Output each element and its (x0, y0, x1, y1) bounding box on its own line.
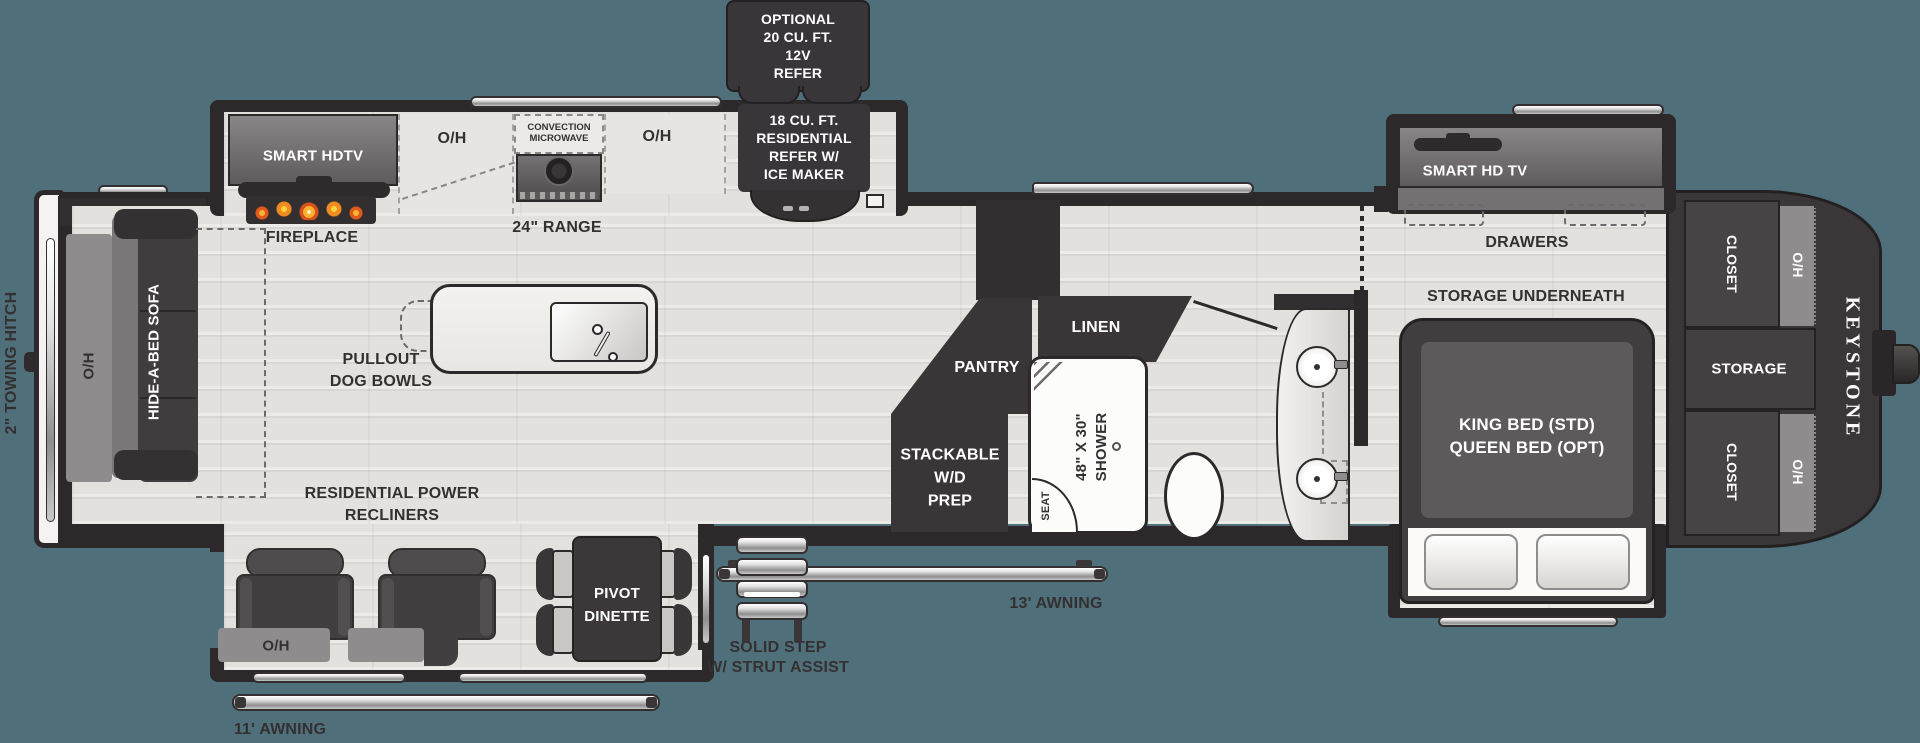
solid-step-label: SOLID STEP W/ STRUT ASSIST (707, 638, 849, 678)
range-controls-icon (520, 192, 598, 199)
dinette-line1: PIVOT (584, 582, 650, 605)
residential-refer-text: 18 CU. FT. RESIDENTIAL REFER W/ ICE MAKE… (738, 111, 870, 183)
fireplace-label: FIREPLACE (266, 229, 358, 247)
bedroom-tv-label: SMART HD TV (1423, 163, 1528, 180)
floorplan-root: 2" TOWING HITCH KEYSTONE CLOSET O/H STOR… (0, 0, 1920, 743)
wd-line2: W/D (900, 467, 999, 490)
vanity-sink-1-drain-icon (1314, 364, 1320, 370)
entry-step-1 (736, 536, 808, 554)
smart-hdtv-label: SMART HDTV (263, 148, 363, 165)
shower-seat-label: SEAT (1040, 491, 1052, 520)
awning-11-cap-right (646, 697, 657, 708)
recliner-footrest (424, 626, 458, 666)
pillow-1 (1424, 534, 1518, 590)
tv-stand-mount-icon (296, 176, 332, 186)
vanity-dashed-divider (1322, 392, 1324, 454)
dog-bowls-line2: DOG BOWLS (330, 371, 432, 393)
optional-refer-line2: 20 CU. FT. (728, 28, 868, 46)
awning-11-cap-left (235, 697, 246, 708)
recliners-line1: RESIDENTIAL POWER (305, 483, 480, 505)
shower-drain-icon (1112, 442, 1121, 451)
bedroom-tv-mount-icon (1446, 133, 1470, 140)
recliners-label: RESIDENTIAL POWER RECLINERS (305, 483, 480, 527)
storage-underneath-label: STORAGE UNDERNEATH (1427, 288, 1625, 306)
sofa-arm-bottom (114, 450, 198, 480)
overhead-front-bottom-label: O/H (1790, 459, 1806, 485)
bedroom-divider-wall (1354, 290, 1368, 446)
range-label: 24" RANGE (512, 219, 601, 237)
closet-front-bottom-label: CLOSET (1724, 443, 1740, 501)
optional-refer-line3: 12V (728, 46, 868, 64)
rear-bumper-bar (46, 238, 55, 522)
pillow-2 (1536, 534, 1630, 590)
dog-bowls-label: PULLOUT DOG BOWLS (330, 349, 432, 393)
vanity-faucet-1-icon (1334, 360, 1348, 369)
recliner-overhead-2 (348, 628, 424, 662)
bottom-wall-rear (60, 524, 222, 548)
awning-11-bar (232, 694, 660, 711)
grab-handle-bar (702, 554, 710, 644)
drawer-outline-1 (1404, 204, 1484, 226)
bed-slide-topper-bar (1438, 616, 1618, 627)
entry-step-4 (736, 602, 808, 620)
storage-front-label: STORAGE (1711, 361, 1786, 378)
shower-label: 48" X 30" SHOWER (1072, 413, 1112, 482)
kingpin-icon (1892, 344, 1920, 384)
toilet (1164, 452, 1224, 540)
awning-11-label: 11' AWNING (234, 721, 326, 739)
convection-microwave-label: CONVECTION MICROWAVE (527, 122, 590, 144)
residential-refer-line1: 18 CU. FT. (738, 111, 870, 129)
bed-label: KING BED (STD) QUEEN BED (OPT) (1449, 413, 1604, 459)
optional-refer-door-icon (738, 86, 800, 104)
drawer-outline-2 (1564, 204, 1646, 226)
refer-callout-residential: 18 CU. FT. RESIDENTIAL REFER W/ ICE MAKE… (738, 104, 870, 192)
dinette-chair-back-4 (674, 604, 692, 656)
optional-refer-line4: REFER (728, 64, 868, 82)
dinette-chair-seat-2 (552, 606, 574, 654)
recliner-overhead-label: O/H (262, 638, 289, 655)
faucet-base-icon (592, 324, 603, 335)
dinette-chair-seat-1 (552, 550, 574, 598)
overhead-cabinet-kitchen-right (604, 114, 726, 194)
shower-line1: 48" X 30" (1072, 413, 1092, 482)
recliner-1-arm-right (338, 578, 350, 636)
shower-line2: SHOWER (1092, 413, 1112, 482)
overhead-kitchen-right-label: O/H (642, 128, 671, 146)
closet-front-top-label: CLOSET (1724, 235, 1740, 293)
awning-13-bracket-right (1076, 560, 1092, 567)
sofa-label: HIDE-A-BED SOFA (146, 284, 163, 420)
hitch-knob-icon (24, 352, 39, 372)
residential-refer-line2: RESIDENTIAL (738, 129, 870, 147)
drawers-label: DRAWERS (1485, 234, 1568, 252)
wd-line3: PREP (900, 490, 999, 513)
bed-label-line1: KING BED (STD) (1449, 413, 1604, 436)
recliner-2-arm-right (480, 578, 492, 636)
vanity-faucet-2-icon (1334, 472, 1348, 481)
entry-step-tread-icon (744, 592, 800, 597)
wd-line1: STACKABLE (900, 444, 999, 467)
wd-prep-label: STACKABLE W/D PREP (900, 444, 999, 513)
optional-refer-text: OPTIONAL 20 CU. FT. 12V REFER (728, 10, 868, 82)
flame-icon (252, 200, 370, 220)
refrigerator-handle-icon (783, 206, 793, 211)
microwave-label-line1: CONVECTION (527, 122, 590, 133)
dinette-label: PIVOT DINETTE (584, 582, 650, 628)
sofa-overhead-label: O/H (81, 352, 98, 379)
sofa-arm-top (114, 209, 198, 239)
kitchen-slide-topper-bar (470, 96, 722, 108)
vanity (1276, 308, 1350, 542)
keystone-logo: KEYSTONE (1841, 297, 1864, 440)
door-side-awning-bar (1032, 182, 1254, 195)
faucet-knob-icon (608, 352, 618, 362)
pantry-label: PANTRY (954, 359, 1019, 377)
awning-13-cap-right (1094, 569, 1105, 579)
bedroom-divider-dotted (1360, 206, 1364, 292)
sofa-bed-pullout-outline (196, 228, 266, 498)
bed-label-line2: QUEEN BED (OPT) (1449, 436, 1604, 459)
refrigerator-handle2-icon (799, 206, 809, 211)
optional-refer-line1: OPTIONAL (728, 10, 868, 28)
overhead-cabinet-kitchen-left (398, 114, 514, 214)
refer-callout-optional: OPTIONAL 20 CU. FT. 12V REFER (726, 0, 870, 92)
entry-step-2 (736, 558, 808, 576)
dog-bowls-line1: PULLOUT (330, 349, 432, 371)
kitchen-bath-wall (976, 200, 1060, 300)
linen-label: LINEN (1072, 319, 1121, 337)
range-burner-icon (544, 156, 574, 186)
recliners-line2: RECLINERS (305, 505, 480, 527)
towing-hitch-label: 2" TOWING HITCH (3, 292, 21, 435)
vanity-sink-2-drain-icon (1314, 476, 1320, 482)
overhead-front-top-label: O/H (1790, 252, 1806, 278)
residential-refer-line4: ICE MAKER (738, 165, 870, 183)
awning-13-cap-left (719, 569, 730, 579)
slide-topper-bar-2 (458, 672, 648, 683)
solid-step-line2: W/ STRUT ASSIST (707, 658, 849, 678)
awning-13-label: 13' AWNING (1009, 595, 1102, 613)
slide-topper-bar-1 (252, 672, 406, 683)
dinette-chair-back-3 (674, 548, 692, 600)
optional-refer-door2-icon (802, 86, 862, 104)
dinette-line2: DINETTE (584, 605, 650, 628)
solid-step-line1: SOLID STEP (707, 638, 849, 658)
entry-door-hinge (866, 194, 884, 208)
overhead-kitchen-left-label: O/H (437, 130, 466, 148)
microwave-label-line2: MICROWAVE (527, 133, 590, 144)
residential-refer-line3: REFER W/ (738, 147, 870, 165)
